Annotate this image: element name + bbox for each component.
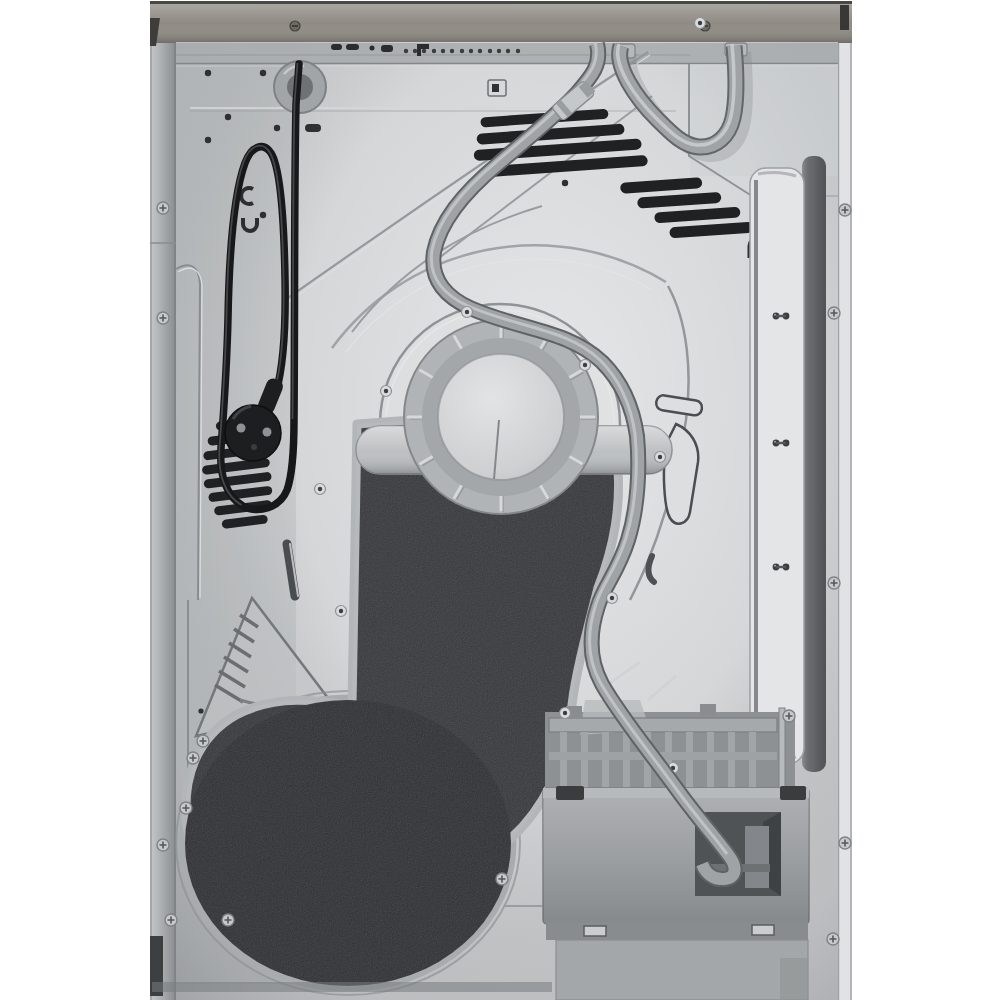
clip-slot [556, 786, 584, 800]
box-screw [783, 710, 795, 722]
strip-screw [290, 21, 300, 31]
panel-screw [695, 18, 706, 29]
clip-slot [780, 786, 806, 800]
photo-stage [0, 0, 1000, 1000]
cabinet-left-edge [150, 42, 176, 1000]
rim-screw [222, 914, 234, 926]
channel-screw [828, 307, 840, 319]
condenser-box [543, 662, 839, 1000]
plug-pin [263, 428, 272, 437]
plug-pin [237, 424, 246, 433]
base-shadow [152, 982, 552, 992]
clip [752, 925, 774, 935]
rim-screw [197, 735, 209, 747]
box-screw [560, 708, 571, 719]
rim-screw [180, 802, 192, 814]
rim-screw [187, 752, 199, 764]
box-screw [827, 933, 839, 945]
top-right-notch [840, 5, 849, 30]
cabinet-right-edge [836, 42, 852, 1000]
clip [584, 926, 606, 936]
kick-panel [556, 940, 808, 1000]
stamped-dash [305, 124, 321, 132]
channel-screw [828, 577, 840, 589]
lattice-rail [549, 718, 777, 732]
lift-rod [779, 708, 785, 792]
top-trim-strip [150, 1, 852, 46]
rim-screw [496, 873, 508, 885]
dryer-rear-illustration [0, 0, 1000, 1000]
